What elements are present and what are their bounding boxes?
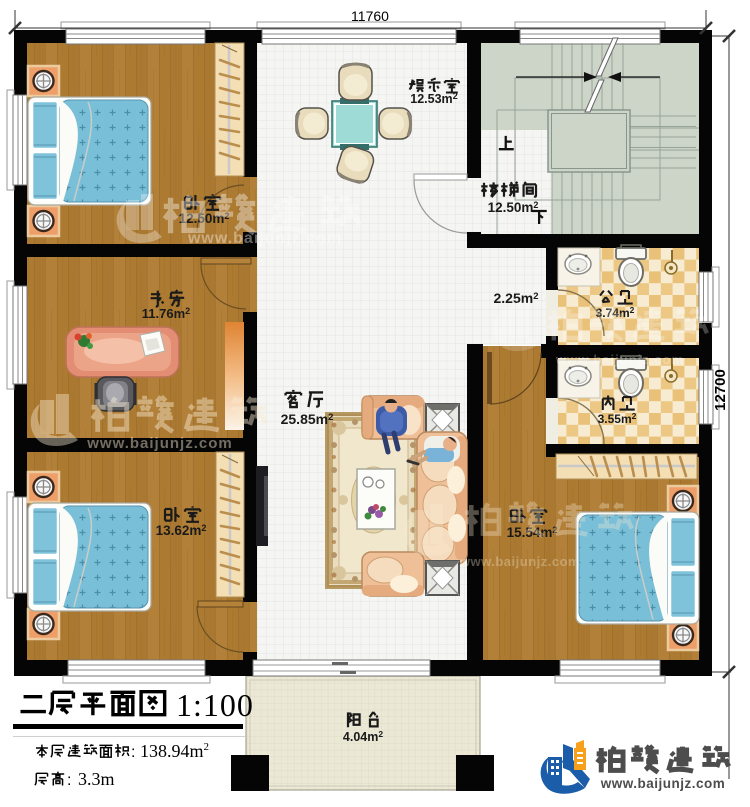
svg-text:4.04m2: 4.04m2 — [343, 729, 383, 744]
svg-text:13.62m2: 13.62m2 — [156, 523, 207, 538]
svg-text:12.53m2: 12.53m2 — [410, 91, 457, 106]
svg-text:2.25m2: 2.25m2 — [494, 290, 539, 306]
svg-text:12700: 12700 — [712, 369, 729, 411]
svg-text:3.3m: 3.3m — [78, 769, 115, 789]
svg-text:www.baijunjz.com: www.baijunjz.com — [600, 776, 726, 791]
svg-text:11.76m2: 11.76m2 — [142, 306, 190, 321]
svg-text::: : — [131, 744, 135, 761]
svg-text:3.55m2: 3.55m2 — [598, 411, 637, 426]
svg-text:www.baijunjz.com: www.baijunjz.com — [187, 230, 342, 247]
svg-text::: : — [67, 772, 71, 789]
svg-text:www.baijunjz.com: www.baijunjz.com — [86, 435, 232, 452]
svg-text:11760: 11760 — [351, 8, 389, 24]
svg-text:25.85m2: 25.85m2 — [281, 411, 334, 427]
svg-text:www.baijunjz.com: www.baijunjz.com — [555, 352, 684, 367]
svg-text:www.baijunjz.com: www.baijunjz.com — [459, 554, 580, 569]
svg-text:1:100: 1:100 — [176, 687, 254, 723]
svg-text:138.94m2: 138.94m2 — [140, 741, 209, 761]
svg-text:12.50m2: 12.50m2 — [488, 200, 539, 215]
